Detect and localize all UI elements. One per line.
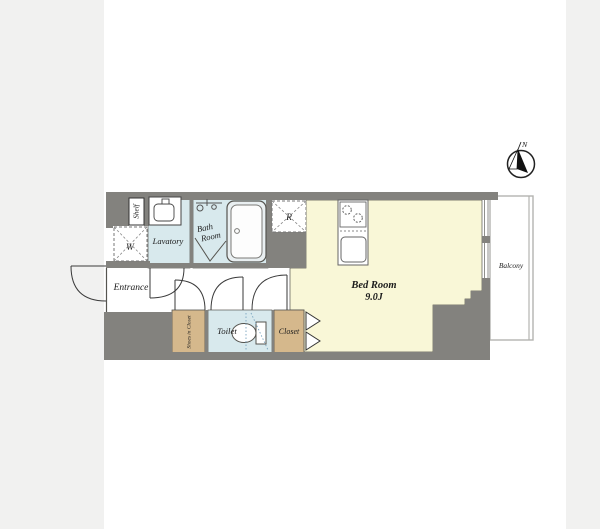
wall-block-bottom-left [104, 312, 172, 356]
entrance-door [71, 266, 106, 301]
wall-window-mullion [482, 236, 490, 243]
wall-lavatory-bath [190, 196, 193, 268]
closet-label: Closet [279, 327, 300, 336]
stove-icon [340, 202, 366, 227]
washing-machine-label: W [126, 243, 135, 253]
refrigerator-box: R [272, 201, 306, 232]
shoes-closet-label: Shoes in Closet [187, 315, 193, 349]
bedroom-label: Bed Room [350, 280, 396, 291]
wall-bath-right [266, 196, 272, 231]
sink-icon [149, 197, 181, 225]
compass-north-label: N [521, 140, 528, 149]
wall-shelf-left [106, 192, 129, 226]
refrigerator-label: R [285, 213, 292, 223]
lavatory-label: Lavatory [152, 236, 184, 246]
kitchen-unit-icon [338, 200, 368, 265]
bathtub-icon [227, 201, 266, 262]
shelf-label: Shelf [133, 203, 141, 218]
wall-block-below-fridge [266, 231, 306, 268]
bedroom-size-label: 9.0J [365, 292, 384, 303]
balcony-label: Balcony [499, 261, 524, 270]
wall-hall-top [148, 263, 306, 268]
wall-shelf-right [144, 192, 149, 226]
shelf-box: Shelf [129, 198, 144, 225]
wall-toilet-closet [272, 310, 274, 354]
floor-plan: Shelf W R [0, 0, 600, 529]
toilet-label: Toilet [217, 326, 237, 336]
kitchen-sink-icon [341, 237, 366, 262]
washing-machine-box: W [114, 227, 147, 261]
floor-plan-page: Shelf W R [0, 0, 600, 529]
entrance-label: Entrance [113, 283, 149, 293]
wall-sic-toilet [205, 310, 208, 354]
wall-bottom [104, 352, 490, 360]
wall-entrance-top [106, 261, 150, 268]
